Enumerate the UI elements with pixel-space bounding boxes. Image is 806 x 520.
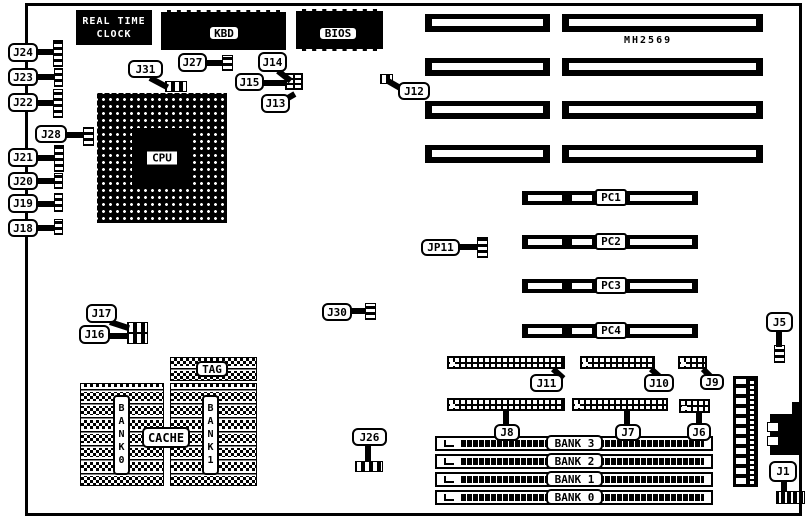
pin-header-j6 <box>679 399 710 413</box>
pci-slot-pc2-label: PC2 <box>595 233 627 250</box>
jumper-label-j1: J1 <box>769 461 797 482</box>
jumper-label-j7: J7 <box>615 424 641 441</box>
rtc-chip: REAL TIMECLOCK <box>76 10 152 45</box>
isa-slot-3-left <box>425 101 550 119</box>
pointer-j21 <box>36 155 54 161</box>
jumper-label-j20: J20 <box>8 172 38 190</box>
pointer-j22 <box>36 100 53 106</box>
pin-header-j20 <box>54 173 63 189</box>
isa-slot-4-left <box>425 145 550 163</box>
pci-slot-pc1-label: PC1 <box>595 189 627 206</box>
board-model-text: MH2569 <box>624 35 672 46</box>
jumper-j31 <box>165 81 187 92</box>
pci-slot-pc2: PC2 <box>522 235 698 249</box>
pci-slot-pc3: PC3 <box>522 279 698 293</box>
jumper-label-j6: J6 <box>687 423 711 441</box>
cache-bank0-label: BANK0 <box>113 395 130 475</box>
pci-slot-pc4-label: PC4 <box>595 322 627 339</box>
bios-chip: BIOS <box>296 9 383 51</box>
pointer-jp11 <box>457 244 478 250</box>
keyboard-connector-step <box>792 402 802 416</box>
cache-label: CACHE <box>142 427 190 448</box>
pointer-j8 <box>503 409 509 425</box>
pin-header-j9 <box>678 356 707 369</box>
keyboard-connector-pin-bottom <box>767 436 779 446</box>
jumper-label-j27: J27 <box>178 53 207 72</box>
jumper-label-j21: J21 <box>8 148 38 167</box>
kbd-chip-label: KBD <box>208 25 240 41</box>
bank1-label: BANK 1 <box>546 471 603 487</box>
tag-label: TAG <box>196 361 228 377</box>
jumper-label-j15: J15 <box>235 73 264 91</box>
jumper-label-j28: J28 <box>35 125 67 143</box>
kbd-chip: KBD <box>161 10 286 50</box>
jumper-label-j11: J11 <box>530 374 563 392</box>
bios-chip-label: BIOS <box>318 26 358 41</box>
pin-header-j22 <box>53 89 63 118</box>
pci-slot-pc4: PC4 <box>522 324 698 338</box>
jumper-label-j16: J16 <box>79 325 110 344</box>
jumper-j27 <box>222 55 233 71</box>
jumper-jp11 <box>477 237 488 258</box>
pointer-j15 <box>262 80 286 86</box>
pointer-j18 <box>36 225 54 231</box>
bank3-label: BANK 3 <box>546 435 603 451</box>
bank0-label: BANK 0 <box>546 489 603 505</box>
jumper-j16 <box>127 333 148 344</box>
keyboard-connector-pin-top <box>767 422 779 432</box>
isa-slot-2-right <box>562 58 763 76</box>
pointer-j24 <box>36 49 54 55</box>
isa-slot-2-left <box>425 58 550 76</box>
jumper-j5 <box>774 345 785 363</box>
jumper-label-j26: J26 <box>352 428 387 446</box>
pointer-j28 <box>65 132 83 138</box>
jumper-label-j9: J9 <box>700 374 724 390</box>
pci-slot-pc1: PC1 <box>522 191 698 205</box>
jumper-label-j19: J19 <box>8 194 38 213</box>
isa-slot-3-right <box>562 101 763 119</box>
jumper-label-jp11: JP11 <box>421 239 460 256</box>
cache-bank1-label: BANK1 <box>202 395 219 475</box>
jumper-label-j31: J31 <box>128 60 163 78</box>
keyboard-connector <box>770 414 802 455</box>
pin-header-j24 <box>53 40 63 67</box>
pin-header-j10 <box>580 356 655 369</box>
jumper-label-j14: J14 <box>258 52 287 72</box>
jumper-j17 <box>127 322 148 333</box>
jumper-label-j10: J10 <box>644 374 674 392</box>
pointer-j5 <box>776 330 782 347</box>
isa-slot-1-right <box>562 14 763 32</box>
jumper-label-j18: J18 <box>8 219 38 237</box>
jumper-j30 <box>365 303 376 320</box>
jumper-label-j24: J24 <box>8 43 38 62</box>
bank2-label: BANK 2 <box>546 453 603 469</box>
isa-slot-1-left <box>425 14 550 32</box>
pointer-j19 <box>36 201 54 207</box>
jumper-label-j30: J30 <box>322 303 352 321</box>
jumper-label-j5: J5 <box>766 312 793 332</box>
jumper-j26 <box>355 461 383 472</box>
connector-j1 <box>776 491 805 504</box>
pointer-j16 <box>107 333 128 339</box>
pointer-j23 <box>36 74 54 80</box>
jumper-label-j17: J17 <box>86 304 117 323</box>
jumper-label-j8: J8 <box>494 424 520 441</box>
pointer-j26 <box>365 444 371 462</box>
power-connector <box>733 376 758 487</box>
pointer-j27 <box>205 60 223 66</box>
pin-header-j21 <box>54 145 64 172</box>
pin-header-j18 <box>54 219 63 235</box>
pin-header-j7 <box>572 398 668 411</box>
pointer-j20 <box>36 178 54 184</box>
rtc-chip-label: REAL TIMECLOCK <box>76 10 152 45</box>
cpu-socket: CPU <box>97 93 227 223</box>
jumper-label-j22: J22 <box>8 93 38 112</box>
pci-slot-pc3-label: PC3 <box>595 277 627 294</box>
jumper-label-j23: J23 <box>8 68 38 86</box>
pin-header-j19 <box>54 193 63 212</box>
jumper-label-j12: J12 <box>398 82 430 100</box>
motherboard-diagram: REAL TIMECLOCK KBD BIOS CPU MH2569 PC1 P… <box>0 0 806 520</box>
jumper-label-j13: J13 <box>261 94 290 113</box>
pin-header-j23 <box>54 68 63 87</box>
pin-header-j11 <box>447 356 565 369</box>
pin-header-j28 <box>83 127 94 146</box>
cpu-label: CPU <box>145 150 179 167</box>
pointer-j7 <box>624 409 630 425</box>
isa-slot-4-right <box>562 145 763 163</box>
